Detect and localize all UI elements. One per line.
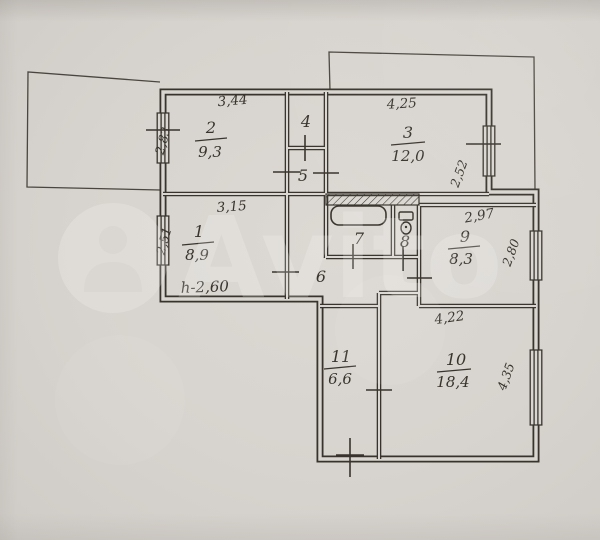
room-10-fraction-line xyxy=(437,369,471,372)
dim-room3-width: 4,25 xyxy=(385,95,417,113)
window-room10-right xyxy=(530,350,543,425)
window-room9-right xyxy=(530,231,543,280)
balcony-outline-top-right xyxy=(329,52,535,191)
avito-watermark: Avito xyxy=(55,194,503,465)
room-3-area: 12,0 xyxy=(391,147,425,165)
room-3-fraction-line xyxy=(391,142,425,145)
floor-plan-photo: 2 9,3 3 12,0 1 8,9 9 8,3 11 6,6 10 18,4 … xyxy=(0,0,600,540)
room-2-number: 2 xyxy=(205,118,216,137)
room-2-fraction-line xyxy=(195,138,227,141)
floor-plan-canvas: 2 9,3 3 12,0 1 8,9 9 8,3 11 6,6 10 18,4 … xyxy=(0,0,600,540)
watermark-text: Avito xyxy=(178,194,503,324)
room-10-area: 18,4 xyxy=(436,373,469,391)
dim-room10-window: 4,35 xyxy=(494,361,518,393)
balcony-outline-left xyxy=(27,72,160,190)
room-5-number: 5 xyxy=(298,166,308,185)
room-11-area: 6,6 xyxy=(328,370,352,388)
dim-room2-width: 3,44 xyxy=(217,92,248,111)
room-2-area: 9,3 xyxy=(198,143,222,161)
watermark-logo-circle xyxy=(58,203,168,313)
room-10-number: 10 xyxy=(446,350,466,369)
watermark-person-head xyxy=(99,226,127,254)
room-4-number: 4 xyxy=(300,112,311,131)
watermark-ghost-blob-2 xyxy=(55,335,185,465)
watermark-ghost-blob xyxy=(335,275,445,385)
room-3-number: 3 xyxy=(403,123,413,142)
window-room3-right xyxy=(483,126,496,176)
dim-room3-window: 2,52 xyxy=(447,158,471,190)
